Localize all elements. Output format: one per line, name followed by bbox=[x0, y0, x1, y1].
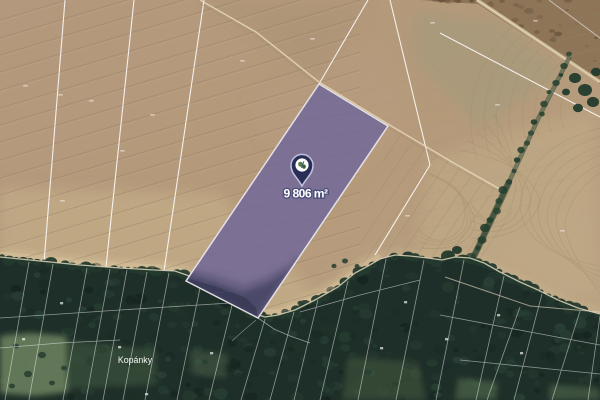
svg-text:Kopánky: Kopánky bbox=[118, 355, 153, 365]
svg-text:9 806 m²: 9 806 m² bbox=[283, 187, 328, 201]
